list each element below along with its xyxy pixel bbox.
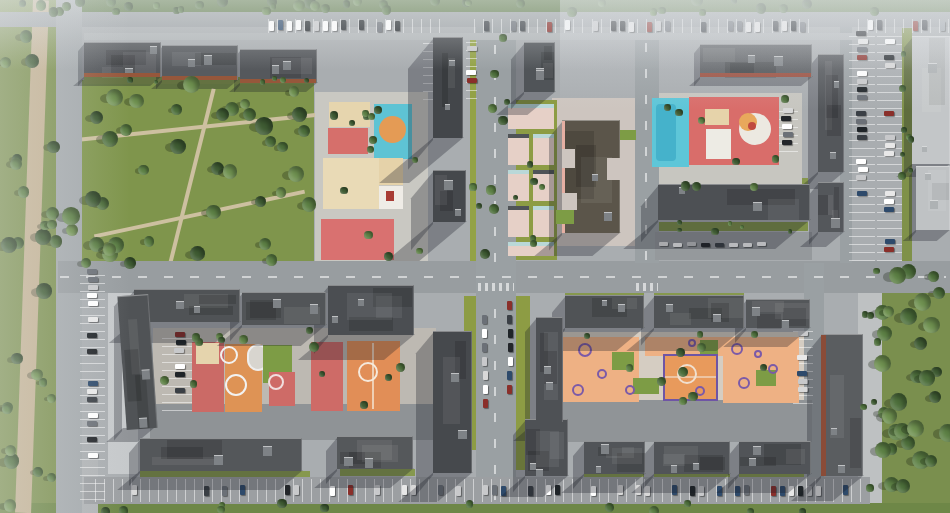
playground xyxy=(706,129,731,159)
tree xyxy=(20,30,32,42)
tree xyxy=(382,5,391,14)
roof-detail xyxy=(753,446,761,455)
court-marking xyxy=(768,364,778,374)
car xyxy=(555,485,560,495)
roof-detail xyxy=(782,320,789,328)
roof-detail xyxy=(442,53,448,107)
car xyxy=(940,21,945,31)
tree xyxy=(272,76,276,80)
tree xyxy=(47,220,56,229)
car xyxy=(884,151,894,156)
car xyxy=(857,71,867,76)
court-marking xyxy=(572,384,584,396)
tree xyxy=(340,187,347,194)
tree xyxy=(101,507,110,513)
road-marking xyxy=(60,276,946,278)
tree xyxy=(10,158,22,170)
roof-detail xyxy=(740,457,775,466)
court-marking xyxy=(386,191,394,201)
tree xyxy=(908,136,915,143)
car xyxy=(175,372,185,377)
building xyxy=(536,317,563,422)
court-marking xyxy=(748,122,756,130)
car xyxy=(701,22,706,32)
car xyxy=(858,167,868,172)
tree xyxy=(302,197,316,211)
roof-detail xyxy=(310,304,319,314)
tree xyxy=(367,146,374,153)
tree xyxy=(882,408,898,424)
tree xyxy=(874,355,891,372)
road-marking xyxy=(494,30,496,262)
building-shadow xyxy=(549,122,562,250)
tree xyxy=(513,195,518,200)
tree xyxy=(33,467,42,476)
building xyxy=(328,285,414,335)
car xyxy=(507,315,512,324)
roof-detail xyxy=(922,68,941,112)
car xyxy=(88,317,98,322)
tree xyxy=(866,484,874,492)
tree xyxy=(190,380,198,388)
road-marking xyxy=(636,283,658,291)
car xyxy=(856,175,866,180)
tree xyxy=(900,152,905,157)
tree xyxy=(489,204,499,214)
roof-detail xyxy=(831,428,837,435)
tree xyxy=(914,337,927,350)
mall-cell xyxy=(508,134,529,165)
tree xyxy=(183,76,200,93)
playground xyxy=(705,109,729,125)
car xyxy=(482,329,487,338)
green-zone xyxy=(0,503,950,513)
car xyxy=(269,21,274,31)
car xyxy=(467,78,477,83)
tree xyxy=(530,240,537,247)
tree xyxy=(385,374,392,381)
tree xyxy=(353,0,362,6)
roof-detail xyxy=(449,60,455,67)
playground xyxy=(321,219,394,260)
car xyxy=(877,20,882,30)
tree xyxy=(170,139,186,155)
tree xyxy=(293,0,304,11)
court-marking xyxy=(358,362,378,382)
roof-detail xyxy=(775,303,809,319)
car xyxy=(467,46,477,51)
mall-cell xyxy=(508,170,529,201)
car xyxy=(287,21,292,31)
roof-detail xyxy=(544,46,552,59)
building xyxy=(242,292,326,325)
car xyxy=(773,21,778,31)
playground xyxy=(323,158,379,209)
roof-detail xyxy=(546,382,553,390)
tree xyxy=(779,4,788,13)
car xyxy=(294,485,299,495)
tree xyxy=(103,243,116,256)
road xyxy=(476,27,516,503)
car xyxy=(87,437,97,442)
tree xyxy=(584,333,590,339)
tree xyxy=(330,111,339,120)
tree xyxy=(217,506,225,513)
tree xyxy=(747,508,755,513)
car xyxy=(857,79,867,84)
car xyxy=(377,22,382,32)
roof-detail xyxy=(930,200,938,209)
tree xyxy=(870,7,879,16)
roof-detail xyxy=(443,357,461,424)
tree xyxy=(384,252,393,261)
roof-detail xyxy=(827,105,841,137)
tree xyxy=(677,220,681,224)
building xyxy=(337,436,413,469)
tree xyxy=(171,104,182,115)
roof-detail xyxy=(830,152,835,158)
tree xyxy=(206,205,221,220)
tree xyxy=(728,221,732,225)
tree xyxy=(124,2,133,11)
roof-detail xyxy=(214,455,223,465)
car xyxy=(885,63,895,68)
building xyxy=(818,54,844,172)
roof-detail xyxy=(188,59,195,67)
car xyxy=(647,22,652,32)
playground xyxy=(196,343,219,364)
tree xyxy=(106,89,123,106)
tree xyxy=(476,203,482,209)
parking-lot xyxy=(268,19,448,33)
car xyxy=(87,421,97,426)
tree xyxy=(270,3,276,9)
court-marking xyxy=(625,385,635,395)
car xyxy=(857,127,867,132)
car xyxy=(402,485,407,495)
building xyxy=(433,170,466,222)
car xyxy=(885,135,895,140)
car xyxy=(483,485,488,495)
roof-detail xyxy=(176,301,183,309)
roof-detail xyxy=(774,56,783,66)
tree xyxy=(309,342,319,352)
tree xyxy=(119,506,128,513)
roof-detail xyxy=(344,457,352,466)
car xyxy=(88,277,98,282)
car xyxy=(507,301,512,310)
building xyxy=(739,441,811,474)
tree xyxy=(679,397,687,405)
roof-detail xyxy=(703,48,734,62)
car xyxy=(88,301,98,306)
car xyxy=(781,116,791,121)
building xyxy=(916,166,950,230)
roof-detail xyxy=(596,466,602,473)
tree xyxy=(530,178,538,186)
roof-detail xyxy=(455,209,461,216)
tree xyxy=(799,508,806,513)
car xyxy=(386,20,391,30)
car xyxy=(507,385,512,394)
car xyxy=(87,333,97,338)
building xyxy=(912,36,950,164)
roof-detail xyxy=(273,299,281,308)
roof-detail xyxy=(263,446,271,455)
roof-detail xyxy=(748,55,755,63)
car xyxy=(359,20,364,30)
car xyxy=(483,371,488,380)
road-marking xyxy=(494,300,496,500)
car xyxy=(87,293,97,298)
roof-detail xyxy=(818,195,827,216)
car xyxy=(456,486,461,496)
tree xyxy=(681,181,691,191)
roof-detail xyxy=(925,173,931,180)
tree xyxy=(2,404,11,413)
roof-detail xyxy=(194,306,200,313)
building xyxy=(658,184,810,220)
tree xyxy=(490,70,499,79)
roof-detail xyxy=(544,366,551,374)
tree xyxy=(62,2,71,11)
aerial-view xyxy=(0,0,950,513)
tree xyxy=(160,376,169,385)
roof-detail xyxy=(749,458,756,466)
tree xyxy=(488,104,497,113)
car xyxy=(791,21,796,31)
car xyxy=(858,39,868,44)
roof-detail xyxy=(272,65,280,74)
car xyxy=(783,132,793,137)
tree xyxy=(310,1,320,11)
car xyxy=(483,385,488,394)
facade-accent xyxy=(162,76,237,80)
car xyxy=(87,269,97,274)
tree xyxy=(675,109,682,116)
tree xyxy=(466,500,474,508)
car xyxy=(884,55,894,60)
tree xyxy=(102,131,118,147)
car xyxy=(520,21,525,31)
building-shadow xyxy=(229,82,318,92)
roof-detail xyxy=(332,316,338,323)
overlay-patch xyxy=(607,158,620,180)
tree xyxy=(664,104,671,111)
tree xyxy=(144,236,154,246)
car xyxy=(482,357,487,366)
car xyxy=(88,413,98,418)
roof-detail xyxy=(138,418,147,428)
tree xyxy=(697,343,706,352)
car xyxy=(395,21,400,31)
mall-cell xyxy=(508,206,529,237)
roof-detail xyxy=(199,295,236,305)
building-shadow xyxy=(904,38,912,176)
tree xyxy=(255,117,272,134)
roof-detail xyxy=(768,199,798,220)
car xyxy=(857,55,867,60)
car xyxy=(884,247,894,252)
car xyxy=(174,348,184,353)
car xyxy=(507,371,512,380)
car xyxy=(755,22,760,32)
car xyxy=(737,21,742,31)
tree xyxy=(49,7,59,17)
car xyxy=(341,20,346,30)
car xyxy=(508,329,513,338)
tree xyxy=(684,500,691,507)
car xyxy=(611,21,616,31)
car xyxy=(492,485,497,495)
car xyxy=(856,31,866,36)
roof-detail xyxy=(204,55,213,65)
roof-detail xyxy=(347,293,393,320)
overlay-patch xyxy=(556,210,574,224)
roof-detail xyxy=(838,465,845,473)
roof-detail xyxy=(606,447,634,458)
tree xyxy=(781,95,789,103)
roof-detail xyxy=(172,52,201,66)
roof-detail xyxy=(664,446,698,464)
tree xyxy=(740,225,744,229)
tree xyxy=(360,401,368,409)
tree xyxy=(626,364,633,371)
car xyxy=(856,159,866,164)
tree xyxy=(900,308,917,325)
tree xyxy=(266,254,277,265)
facade-accent xyxy=(821,335,826,476)
tree xyxy=(465,0,472,6)
car xyxy=(593,21,598,31)
roof-detail xyxy=(713,314,720,322)
building xyxy=(524,42,555,92)
tree xyxy=(772,155,780,163)
tree xyxy=(650,8,657,15)
tree xyxy=(605,503,614,512)
roof-detail xyxy=(752,307,760,316)
overlay-patch xyxy=(562,149,575,168)
car xyxy=(885,143,895,148)
tree xyxy=(416,248,422,254)
car xyxy=(305,21,310,31)
court-marking xyxy=(738,377,750,389)
playground xyxy=(328,128,368,154)
tree xyxy=(396,363,405,372)
building xyxy=(818,182,844,232)
tree xyxy=(39,378,47,386)
tree xyxy=(469,183,476,190)
car xyxy=(484,21,489,31)
car xyxy=(783,108,793,113)
car xyxy=(620,21,625,31)
roof-detail xyxy=(786,449,805,464)
car xyxy=(797,355,807,360)
car xyxy=(782,124,792,129)
tree xyxy=(320,504,328,512)
car xyxy=(87,389,97,394)
roof-detail xyxy=(850,418,861,467)
building xyxy=(162,45,238,80)
overlay-patch xyxy=(562,193,577,210)
roof-detail xyxy=(150,46,157,54)
car xyxy=(87,397,97,402)
building xyxy=(746,299,810,328)
car xyxy=(508,343,513,352)
roof-detail xyxy=(445,104,450,110)
tree xyxy=(277,142,287,152)
car xyxy=(857,135,867,140)
tree xyxy=(216,108,229,121)
roof-detail xyxy=(618,304,625,312)
car xyxy=(913,21,918,31)
tree xyxy=(649,506,659,513)
car xyxy=(547,22,552,32)
roof-detail xyxy=(444,180,453,190)
building xyxy=(525,419,568,476)
tree xyxy=(374,106,382,114)
court-marking xyxy=(225,374,247,396)
roof-detail xyxy=(670,313,691,325)
car xyxy=(88,453,98,458)
car xyxy=(885,191,895,196)
tree xyxy=(154,80,158,84)
tree xyxy=(756,3,767,14)
tree xyxy=(939,424,950,442)
tree xyxy=(498,116,508,126)
car xyxy=(800,22,805,32)
tree xyxy=(90,111,103,124)
car xyxy=(885,39,895,44)
tree xyxy=(527,161,534,168)
roof-detail xyxy=(831,218,840,228)
car xyxy=(857,87,867,92)
overlay-patch xyxy=(620,130,636,140)
roof-detail xyxy=(922,146,927,152)
tree xyxy=(923,317,940,334)
tree xyxy=(11,353,22,364)
roof-detail xyxy=(576,145,597,188)
car xyxy=(857,191,867,196)
car xyxy=(565,20,570,30)
car xyxy=(285,485,290,495)
tree xyxy=(711,228,718,235)
tree xyxy=(120,124,132,136)
parking-lot xyxy=(849,30,875,261)
roof-detail xyxy=(928,63,937,73)
roof-detail xyxy=(451,373,459,382)
playground xyxy=(379,116,406,143)
roof-detail xyxy=(536,70,545,80)
tree xyxy=(50,235,63,248)
tree xyxy=(223,164,237,178)
car xyxy=(885,239,895,244)
roof-detail xyxy=(536,469,542,476)
tree xyxy=(873,268,879,274)
car xyxy=(483,399,488,408)
building xyxy=(433,37,463,138)
car xyxy=(332,21,337,31)
car xyxy=(482,343,487,352)
car xyxy=(856,111,866,116)
tree xyxy=(178,6,184,12)
roof-detail xyxy=(602,300,607,306)
road-marking xyxy=(478,283,514,291)
car xyxy=(797,371,807,376)
roof-detail xyxy=(671,465,678,473)
court-marking xyxy=(220,346,238,364)
tree xyxy=(933,287,945,299)
